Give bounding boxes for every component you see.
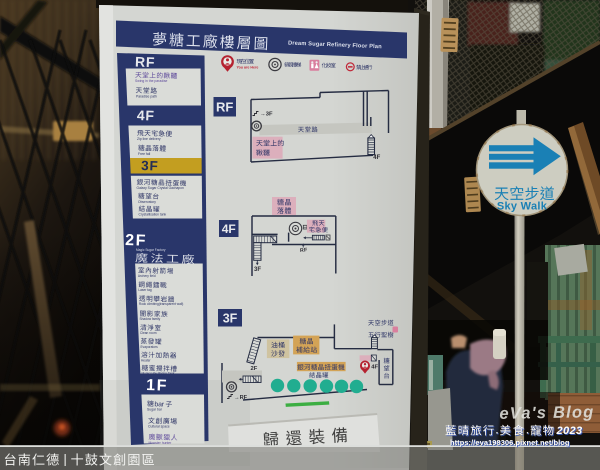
svg-text:4F: 4F [137, 107, 156, 124]
svg-text:|: | [64, 453, 67, 467]
svg-text:Crystallisation tank: Crystallisation tank [139, 213, 167, 217]
svg-text:Archery field: Archery field [138, 274, 156, 278]
svg-text:3F: 3F [254, 267, 261, 273]
svg-text:Laser tag: Laser tag [138, 288, 152, 292]
svg-text:Zip line delivery: Zip line delivery [137, 137, 161, 141]
svg-text:https://eva198306.pixnet.net/b: https://eva198306.pixnet.net/blog [450, 438, 570, 447]
svg-text:Paradise path: Paradise path [136, 95, 157, 99]
svg-text:4F: 4F [373, 155, 380, 161]
svg-text:→3F: →3F [260, 112, 273, 118]
svg-text:Heater: Heater [141, 358, 152, 362]
svg-text:Cultural space: Cultural space [148, 425, 170, 429]
svg-text:Magic Sugar Factory: Magic Sugar Factory [136, 248, 166, 252]
svg-text:Sugar bar: Sugar bar [147, 408, 163, 412]
svg-text:You are Here: You are Here [237, 65, 259, 69]
svg-text:3F: 3F [141, 158, 159, 174]
svg-text:Swing in the paradise: Swing in the paradise [135, 79, 168, 83]
svg-text:2023: 2023 [556, 425, 583, 437]
svg-text:RF: RF [135, 54, 156, 71]
svg-text:.: . [526, 426, 529, 436]
svg-text:Observatory: Observatory [138, 200, 156, 204]
svg-text:RF: RF [216, 100, 233, 115]
svg-text:RF: RF [300, 247, 308, 254]
svg-text:Molascuite Mixing Tank: Molascuite Mixing Tank [142, 372, 175, 376]
svg-text:3F: 3F [223, 312, 238, 326]
svg-text:4F: 4F [222, 222, 236, 236]
svg-text:.: . [496, 426, 499, 436]
svg-text:4F: 4F [371, 364, 378, 370]
svg-text:Rock climbing(transparent wall: Rock climbing(transparent wall) [139, 302, 183, 306]
svg-text:Galaxy Sugar Crystal Gachapon: Galaxy Sugar Crystal Gachapon [137, 186, 184, 190]
svg-text:Sky Walk: Sky Walk [497, 201, 548, 213]
svg-text:Free fall: Free fall [138, 152, 150, 156]
svg-text:Evaporators: Evaporators [141, 345, 159, 349]
svg-text:1F: 1F [146, 377, 168, 395]
svg-text:eVa's Blog: eVa's Blog [499, 403, 594, 423]
svg-text:Monster hunter: Monster hunter [149, 441, 173, 445]
svg-text:Shadow family: Shadow family [140, 317, 161, 321]
svg-text:→RF: →RF [234, 395, 248, 401]
svg-text:Clean room: Clean room [140, 331, 157, 335]
